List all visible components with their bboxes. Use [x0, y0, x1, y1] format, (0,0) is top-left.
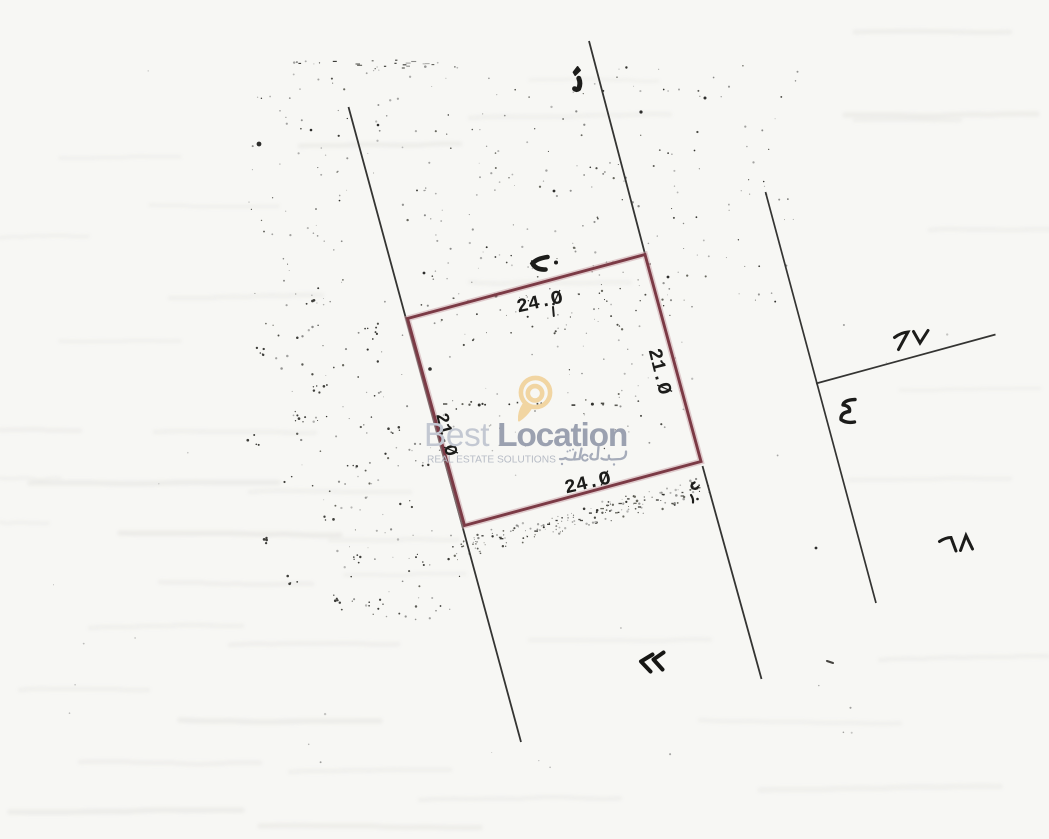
svg-text:REAL ESTATE SOLUTIONS: REAL ESTATE SOLUTIONS	[427, 455, 556, 466]
svg-text:Best Location: Best Location	[424, 417, 627, 454]
